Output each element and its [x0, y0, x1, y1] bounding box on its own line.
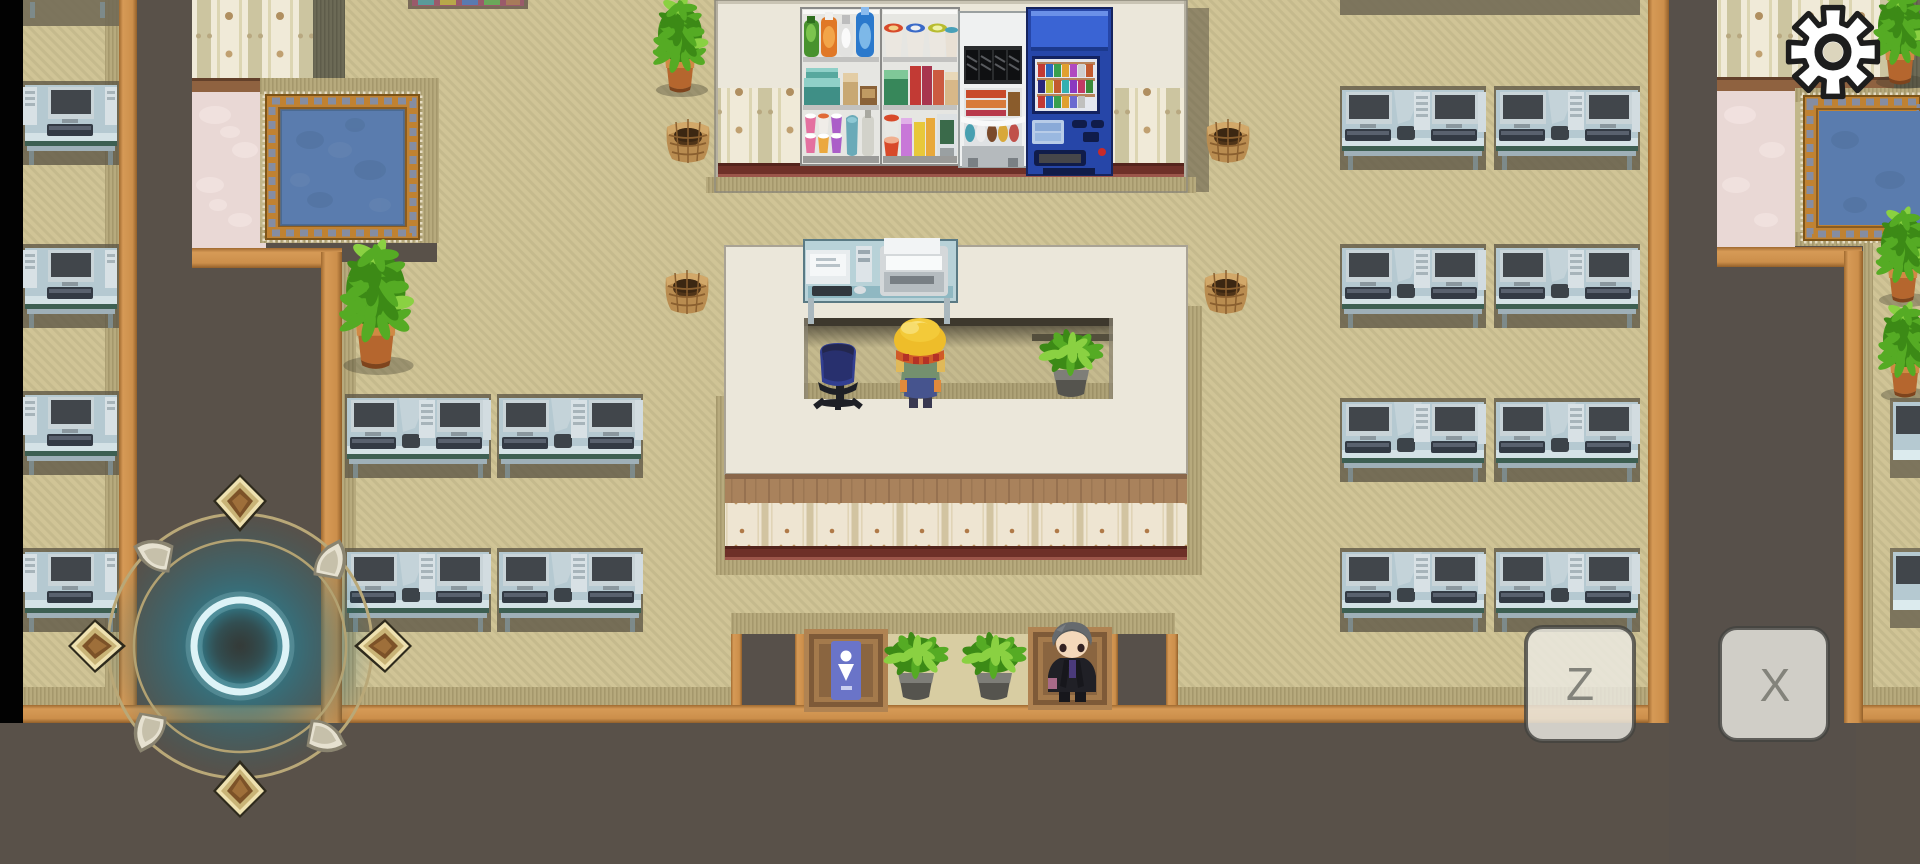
svg-text:Z: Z: [1566, 658, 1594, 710]
svg-text:X: X: [1760, 659, 1791, 711]
